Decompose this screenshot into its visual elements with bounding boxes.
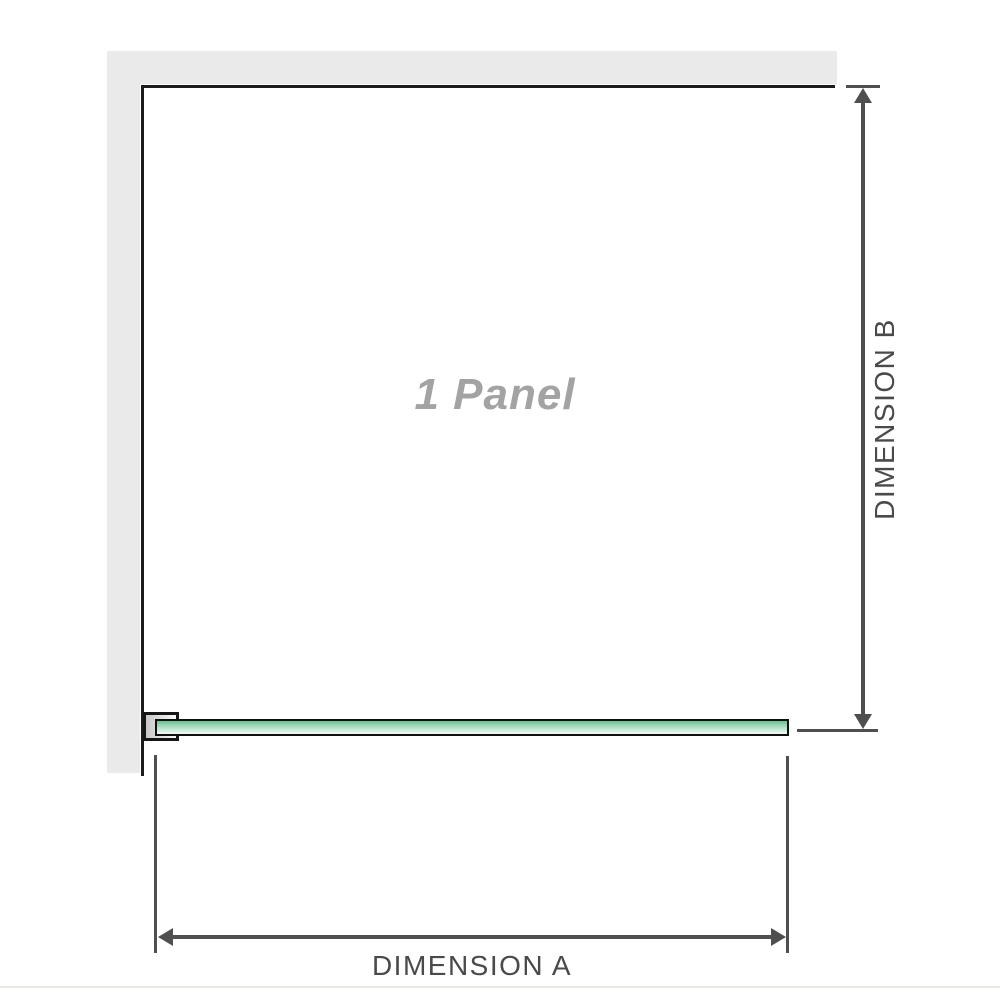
dimension-a-extension-left: [154, 755, 157, 953]
glass-panel: [155, 719, 789, 736]
panel-outline-left: [141, 85, 144, 776]
dimension-a-label: DIMENSION A: [157, 950, 787, 982]
dimension-b-line: [861, 95, 865, 721]
panel-count-label: 1 Panel: [300, 370, 690, 420]
arrow-down-icon: [854, 714, 872, 729]
arrow-right-icon: [771, 928, 786, 946]
dimension-a-extension-right: [786, 756, 789, 953]
wall-left: [107, 51, 140, 773]
dimension-b-bottom-tick: [797, 729, 878, 732]
arrow-up-icon: [854, 88, 872, 103]
arrow-left-icon: [158, 928, 173, 946]
bottom-rule: [0, 986, 1000, 988]
dimension-b-label: DIMENSION B: [869, 304, 901, 534]
panel-outline-top: [141, 85, 835, 88]
diagram-canvas: 1 Panel DIMENSION B DIMENSION A: [0, 0, 1000, 1000]
wall-top: [107, 51, 837, 84]
dimension-a-line: [165, 935, 778, 939]
